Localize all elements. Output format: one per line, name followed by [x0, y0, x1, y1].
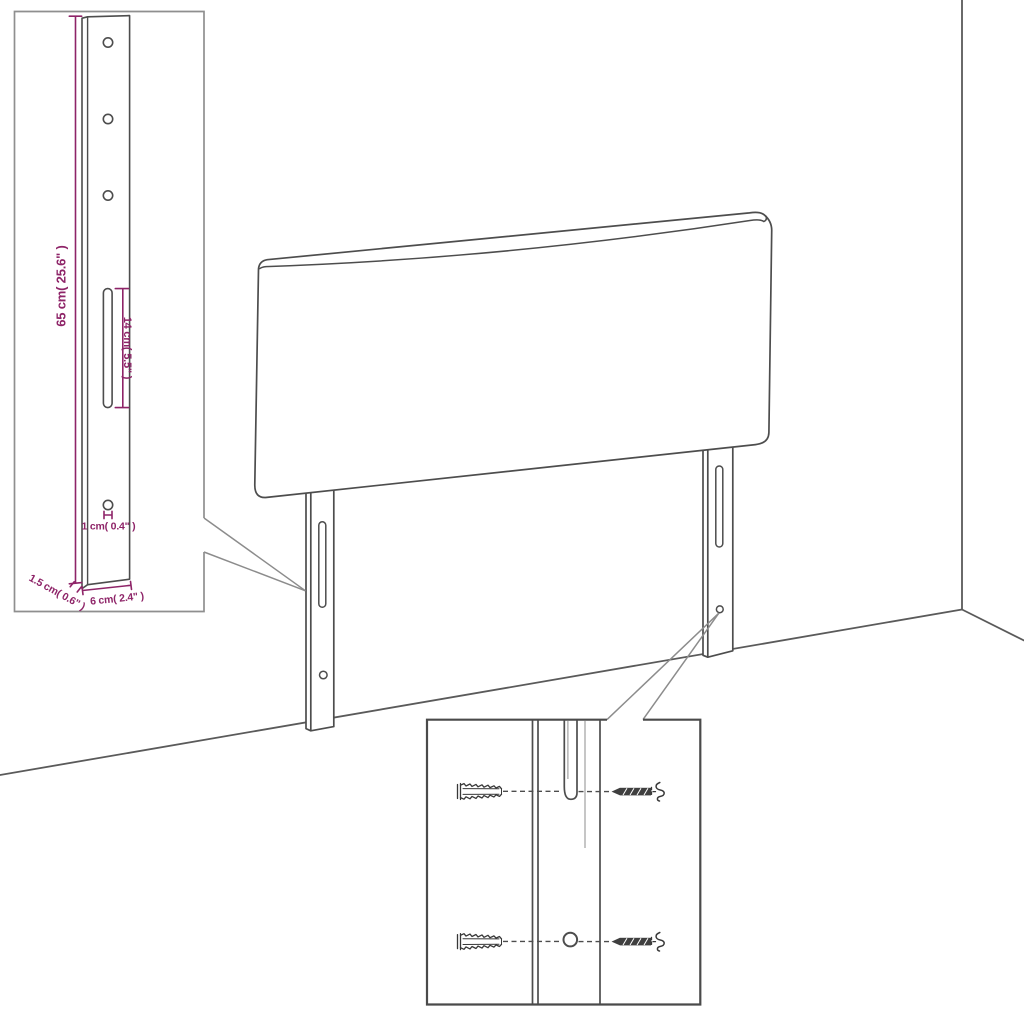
dimension-height-line: [69, 16, 81, 584]
product-diagram-canvas: 65 cm( 25.6" ) 14 cm( 5.5" ) 1 cm( 0.4" …: [0, 0, 1024, 1024]
dimension-height-label: 65 cm( 25.6" ): [54, 245, 69, 326]
inset-leg-hole-low: [103, 191, 112, 200]
headboard-panel: [255, 212, 772, 497]
dimension-height: 65 cm( 25.6" ): [54, 16, 82, 584]
floor-line-right: [962, 610, 1024, 641]
leader-line-right-a: [607, 613, 719, 719]
headboard-diagram: 65 cm( 25.6" ) 14 cm( 5.5" ) 1 cm( 0.4" …: [0, 0, 1024, 1024]
inset-leg-slot: [103, 289, 112, 408]
leg-left-hole: [320, 671, 328, 679]
leader-line-left-bottom: [204, 552, 306, 591]
dimension-slot-label: 14 cm( 5.5" ): [121, 317, 133, 380]
dimension-thickness-label: 1.5 cm( 0.6" ): [27, 572, 87, 613]
leg-right-slot: [716, 466, 723, 547]
dimension-leg-width-label: 6 cm( 2.4" ): [90, 590, 145, 608]
leader-line-left-top: [204, 518, 306, 591]
detail-inset-mounting: [427, 720, 700, 1005]
dimension-thickness: 1.5 cm( 0.6" ): [27, 572, 87, 613]
inset-leg-hole-mid: [103, 114, 112, 123]
leg-right-hole: [716, 606, 723, 613]
mount-leg-hole: [564, 933, 578, 947]
inset-leg-hole-bottom: [103, 500, 112, 509]
dimension-hole-label: 1 cm( 0.4" ): [82, 521, 136, 533]
leg-left-slot: [319, 522, 326, 608]
inset-leg-hole-top: [103, 38, 112, 47]
panel-outline: [255, 212, 772, 497]
detail-inset-leg-dimensions: 65 cm( 25.6" ) 14 cm( 5.5" ) 1 cm( 0.4" …: [15, 12, 205, 613]
leader-line-right-b: [643, 613, 719, 719]
callout-leaders: [204, 518, 719, 720]
dimension-leg-width: 6 cm( 2.4" ): [82, 581, 144, 607]
